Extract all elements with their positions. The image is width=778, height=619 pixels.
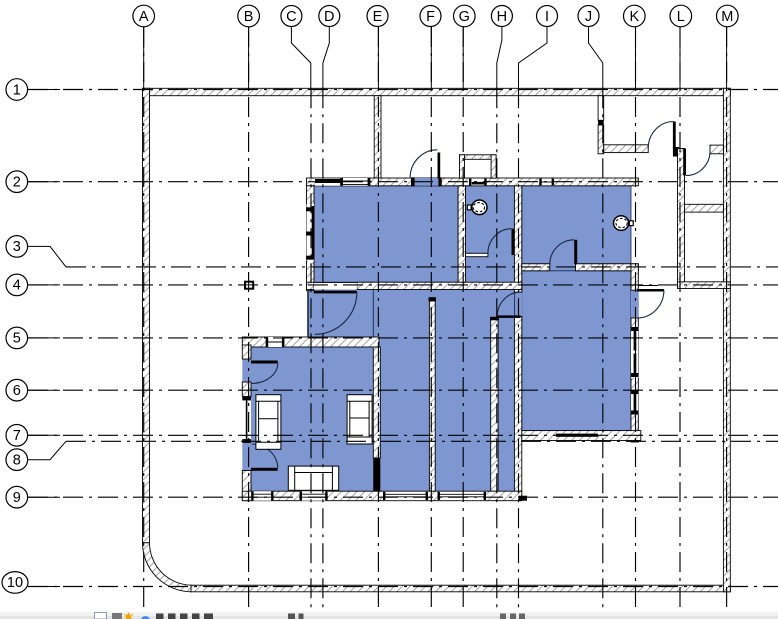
svg-text:M: M (721, 9, 733, 25)
svg-text:F: F (426, 9, 435, 25)
svg-text:8: 8 (13, 453, 21, 469)
svg-text:J: J (585, 9, 592, 25)
svg-text:H: H (497, 9, 507, 25)
svg-text:L: L (677, 9, 685, 25)
svg-text:G: G (459, 9, 470, 25)
svg-text:1: 1 (13, 82, 21, 98)
svg-text:4: 4 (13, 278, 21, 294)
svg-text:10: 10 (7, 575, 23, 591)
svg-text:7: 7 (13, 428, 21, 444)
svg-text:B: B (244, 9, 254, 25)
svg-text:5: 5 (13, 331, 21, 347)
svg-text:K: K (629, 9, 639, 25)
svg-text:C: C (286, 9, 296, 25)
svg-text:D: D (324, 9, 334, 25)
svg-text:6: 6 (13, 383, 21, 399)
svg-text:E: E (373, 9, 383, 25)
svg-text:2: 2 (13, 175, 21, 191)
svg-text:9: 9 (13, 490, 21, 506)
svg-text:I: I (545, 9, 549, 25)
svg-text:3: 3 (13, 239, 21, 255)
svg-text:A: A (139, 9, 149, 25)
